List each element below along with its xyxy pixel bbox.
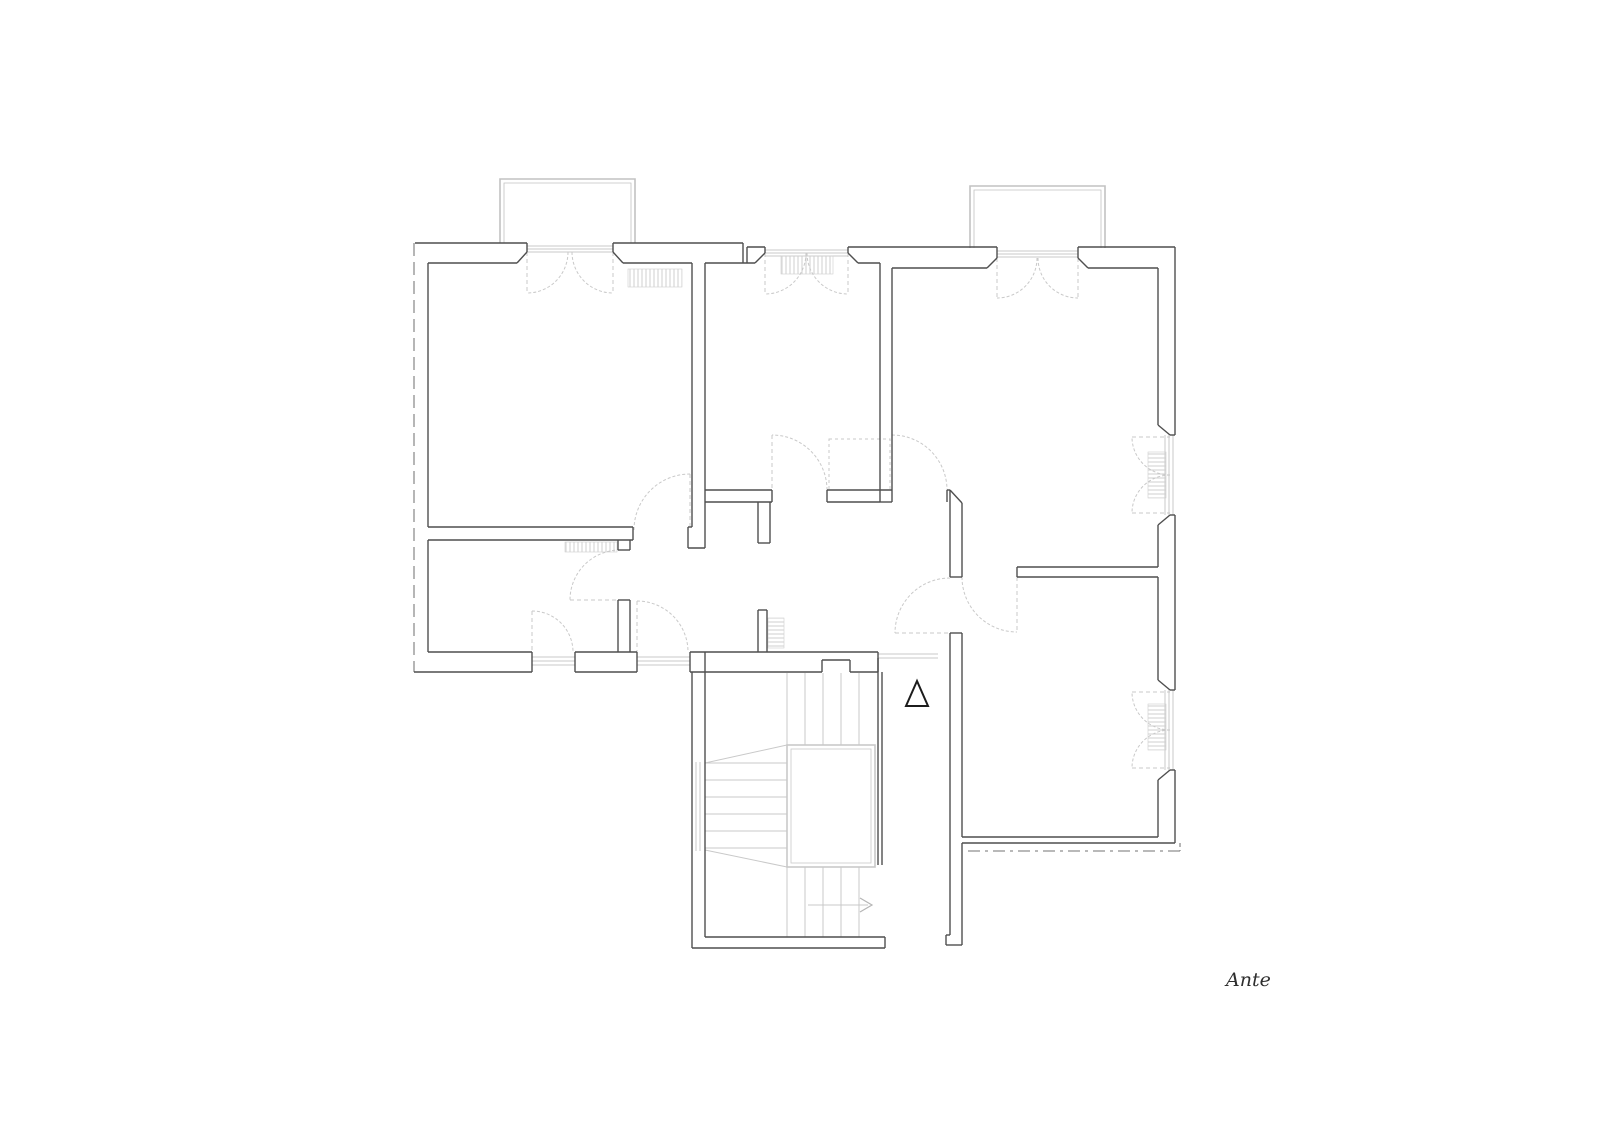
balcony-outlines [500, 179, 1105, 248]
stair-well-opening [787, 745, 875, 867]
window-sills-stair-steps-lines [527, 246, 1173, 937]
entrance-triangle-marker [906, 681, 928, 706]
floor-plan-drawing: Ante [0, 0, 1600, 1132]
annotation-marks [860, 681, 928, 912]
property-boundary-dashed-lines [414, 243, 1180, 851]
radiator-symbols [565, 256, 1166, 750]
wall-lines [414, 243, 1175, 948]
floor-plan-page: Ante [0, 0, 1600, 1132]
door-leaf-dashed-lines [527, 252, 1170, 768]
room-label-ante: Ante [1224, 969, 1271, 991]
door-swing-arcs [527, 252, 1170, 768]
wardrobe-dashed-outline [829, 439, 890, 490]
